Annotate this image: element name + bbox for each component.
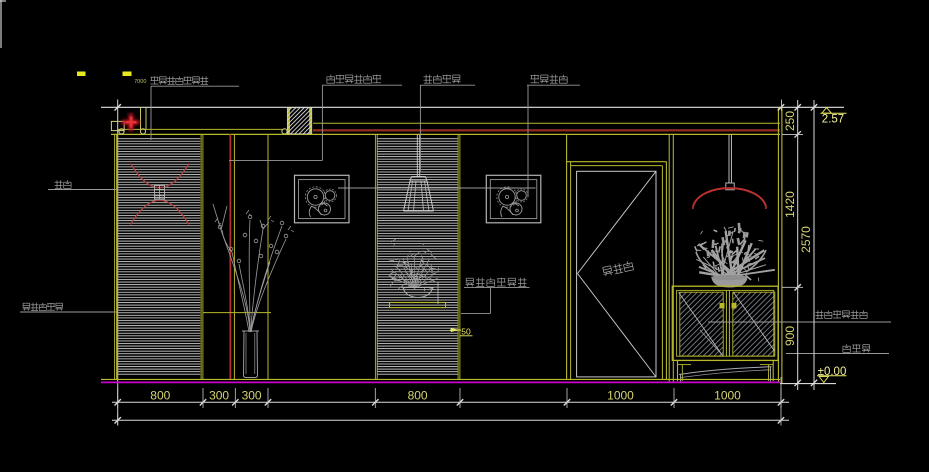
svg-text:7000: 7000 [134, 79, 146, 85]
svg-text:1000: 1000 [714, 389, 741, 403]
svg-text:2.57: 2.57 [822, 113, 844, 125]
svg-text:250: 250 [783, 111, 797, 131]
svg-text:300: 300 [209, 389, 229, 403]
svg-text:50: 50 [461, 327, 471, 337]
svg-text:900: 900 [783, 326, 797, 346]
svg-text:1000: 1000 [607, 389, 634, 403]
svg-text:800: 800 [150, 389, 170, 403]
svg-text:800: 800 [408, 389, 428, 403]
svg-text:300: 300 [242, 389, 262, 403]
svg-text:2570: 2570 [799, 226, 813, 253]
svg-text:1420: 1420 [783, 191, 797, 218]
